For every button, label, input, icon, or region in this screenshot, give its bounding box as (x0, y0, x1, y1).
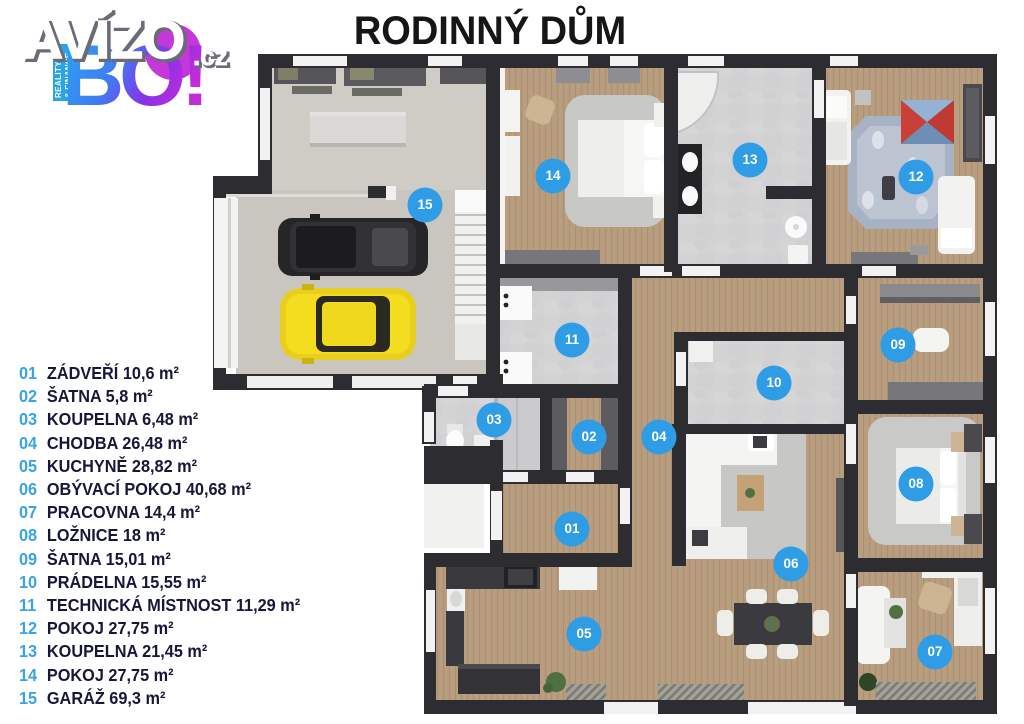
svg-text:13: 13 (742, 152, 758, 167)
svg-text:01: 01 (564, 521, 580, 536)
svg-text:09: 09 (890, 337, 905, 352)
svg-text:02: 02 (581, 429, 596, 444)
svg-text:03: 03 (486, 412, 502, 427)
svg-text:07: 07 (927, 644, 942, 659)
svg-text:12: 12 (908, 169, 923, 184)
svg-text:08: 08 (908, 476, 924, 491)
svg-text:11: 11 (565, 332, 580, 347)
svg-text:04: 04 (651, 429, 667, 444)
svg-text:15: 15 (417, 197, 433, 212)
svg-text:06: 06 (783, 556, 799, 571)
svg-text:05: 05 (576, 626, 592, 641)
svg-text:10: 10 (766, 375, 781, 390)
svg-text:14: 14 (545, 168, 561, 183)
